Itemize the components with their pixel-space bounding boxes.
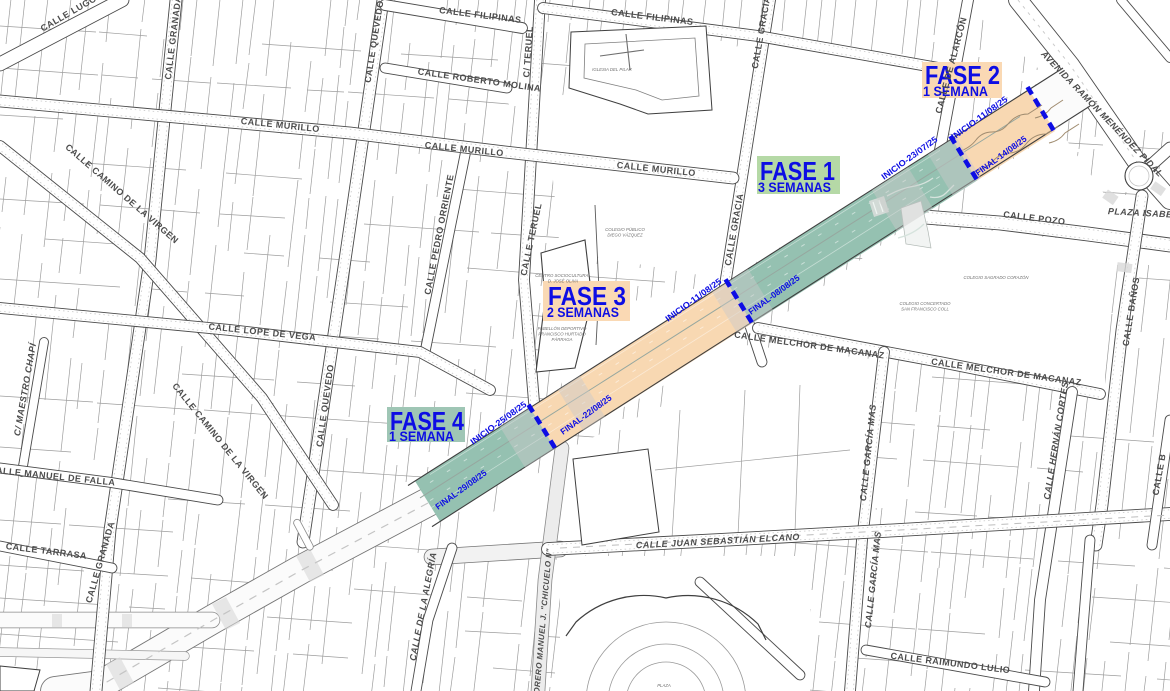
svg-text:COLEGIO CONCERTADOSAN FRANCISC: COLEGIO CONCERTADOSAN FRANCISCO COLL: [900, 301, 952, 311]
svg-text:2 SEMANAS: 2 SEMANAS: [547, 305, 619, 320]
svg-text:1 SEMANA: 1 SEMANA: [923, 84, 988, 99]
svg-text:1 SEMANA: 1 SEMANA: [389, 429, 454, 444]
svg-text:COLEGIO SAGRADO CORAZÓN: COLEGIO SAGRADO CORAZÓN: [964, 275, 1030, 280]
svg-text:COLEGIO PÚBLICODIEGO VÁZQUEZ: COLEGIO PÚBLICODIEGO VÁZQUEZ: [605, 227, 645, 237]
svg-text:PLAZA: PLAZA: [657, 683, 671, 688]
svg-text:3 SEMANAS: 3 SEMANAS: [758, 180, 831, 195]
svg-text:IGLESIA DEL PILAR: IGLESIA DEL PILAR: [592, 67, 632, 72]
